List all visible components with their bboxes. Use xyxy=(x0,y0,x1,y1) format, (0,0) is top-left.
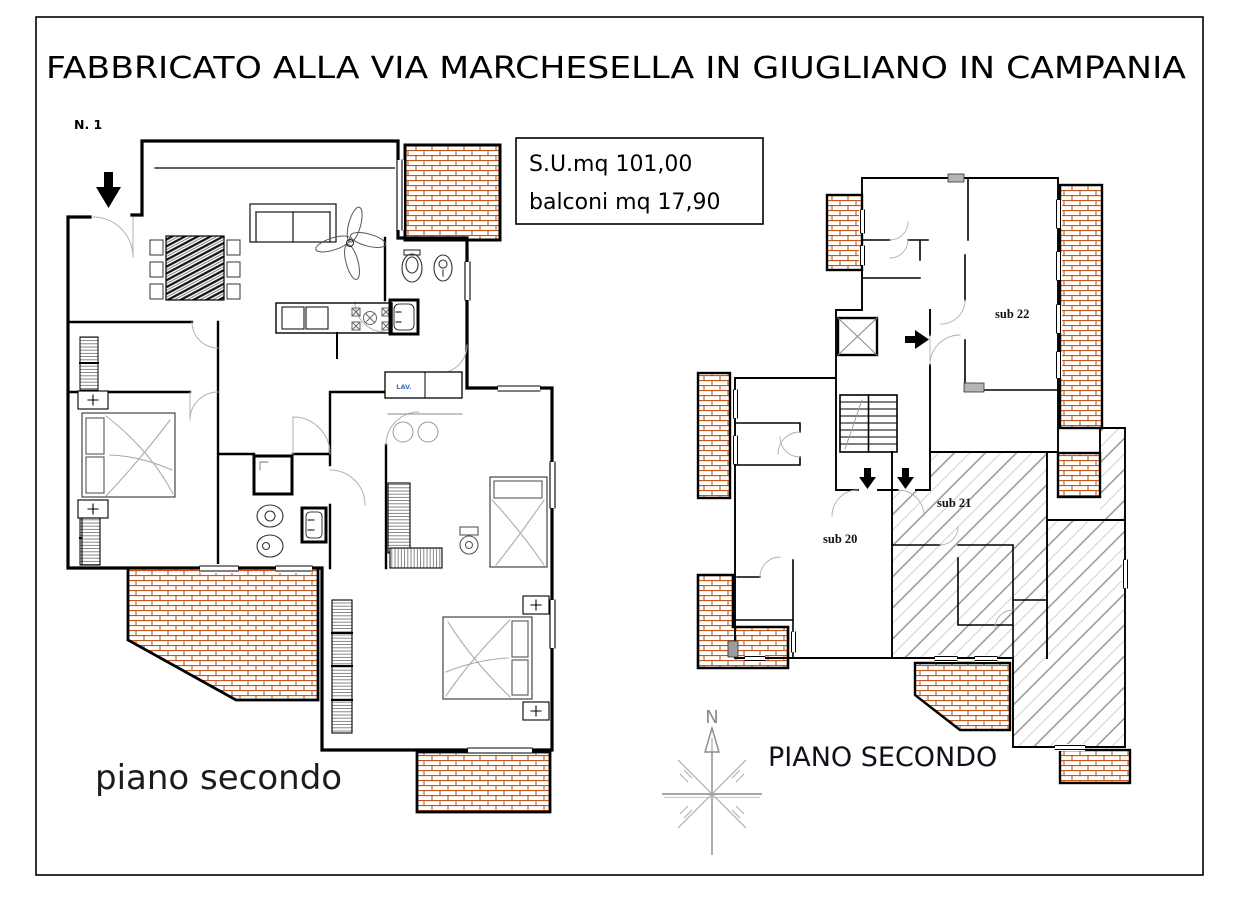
window-bedroom3-bottom xyxy=(468,746,532,755)
window-bedroom2-top xyxy=(498,384,540,393)
nightstand xyxy=(523,596,549,614)
pilaster xyxy=(964,383,984,392)
window-bedroom1-bottom xyxy=(200,564,238,573)
pilaster xyxy=(948,174,964,182)
unit-label-sub20: sub 20 xyxy=(823,532,857,546)
surface-area-value: S.U.mq 101,00 xyxy=(529,152,692,177)
wardrobe xyxy=(388,483,410,553)
nightstand xyxy=(78,500,108,518)
balcony-bottom xyxy=(417,752,550,812)
page-title: FABBRICATO ALLA VIA MARCHESELLA IN GIUGL… xyxy=(46,51,1187,86)
nightstand xyxy=(78,391,108,409)
balcony-area-value: balconi mq 17,90 xyxy=(529,190,721,215)
wardrobe xyxy=(390,548,442,568)
balcony-brick xyxy=(698,373,730,498)
compass-north-label: N xyxy=(705,707,718,728)
nightstand xyxy=(523,702,549,720)
balcony-brick xyxy=(1058,453,1100,497)
left-plan-caption: piano secondo xyxy=(95,758,342,798)
pilaster xyxy=(728,641,738,657)
surface-info-box: S.U.mq 101,00 balconi mq 17,90 xyxy=(516,138,763,224)
wardrobe xyxy=(82,518,100,565)
unit-sub21-area xyxy=(1100,428,1125,520)
balcony-top-right xyxy=(405,145,500,240)
unit-label-sub22: sub 22 xyxy=(995,307,1029,321)
elevator-shaft xyxy=(838,318,877,355)
window-bedroom2-right xyxy=(548,462,557,508)
right-plan-caption: PIANO SECONDO xyxy=(768,742,997,773)
plan-number-label: N. 1 xyxy=(74,117,102,132)
window-bath2-bottom xyxy=(276,564,312,573)
window-bath1 xyxy=(463,262,472,300)
balcony-brick xyxy=(1060,185,1102,428)
washer-label: LAV. xyxy=(396,383,411,391)
floor-plan-drawing: FABBRICATO ALLA VIA MARCHESELLA IN GIUGL… xyxy=(0,0,1239,896)
floor-plan-sheet: FABBRICATO ALLA VIA MARCHESELLA IN GIUGL… xyxy=(0,0,1239,896)
unit-label-sub21: sub 21 xyxy=(937,496,971,510)
dining-table xyxy=(150,236,240,300)
balcony-brick xyxy=(827,195,862,270)
balcony-brick xyxy=(1060,750,1130,783)
window-balcony-door xyxy=(395,160,404,230)
